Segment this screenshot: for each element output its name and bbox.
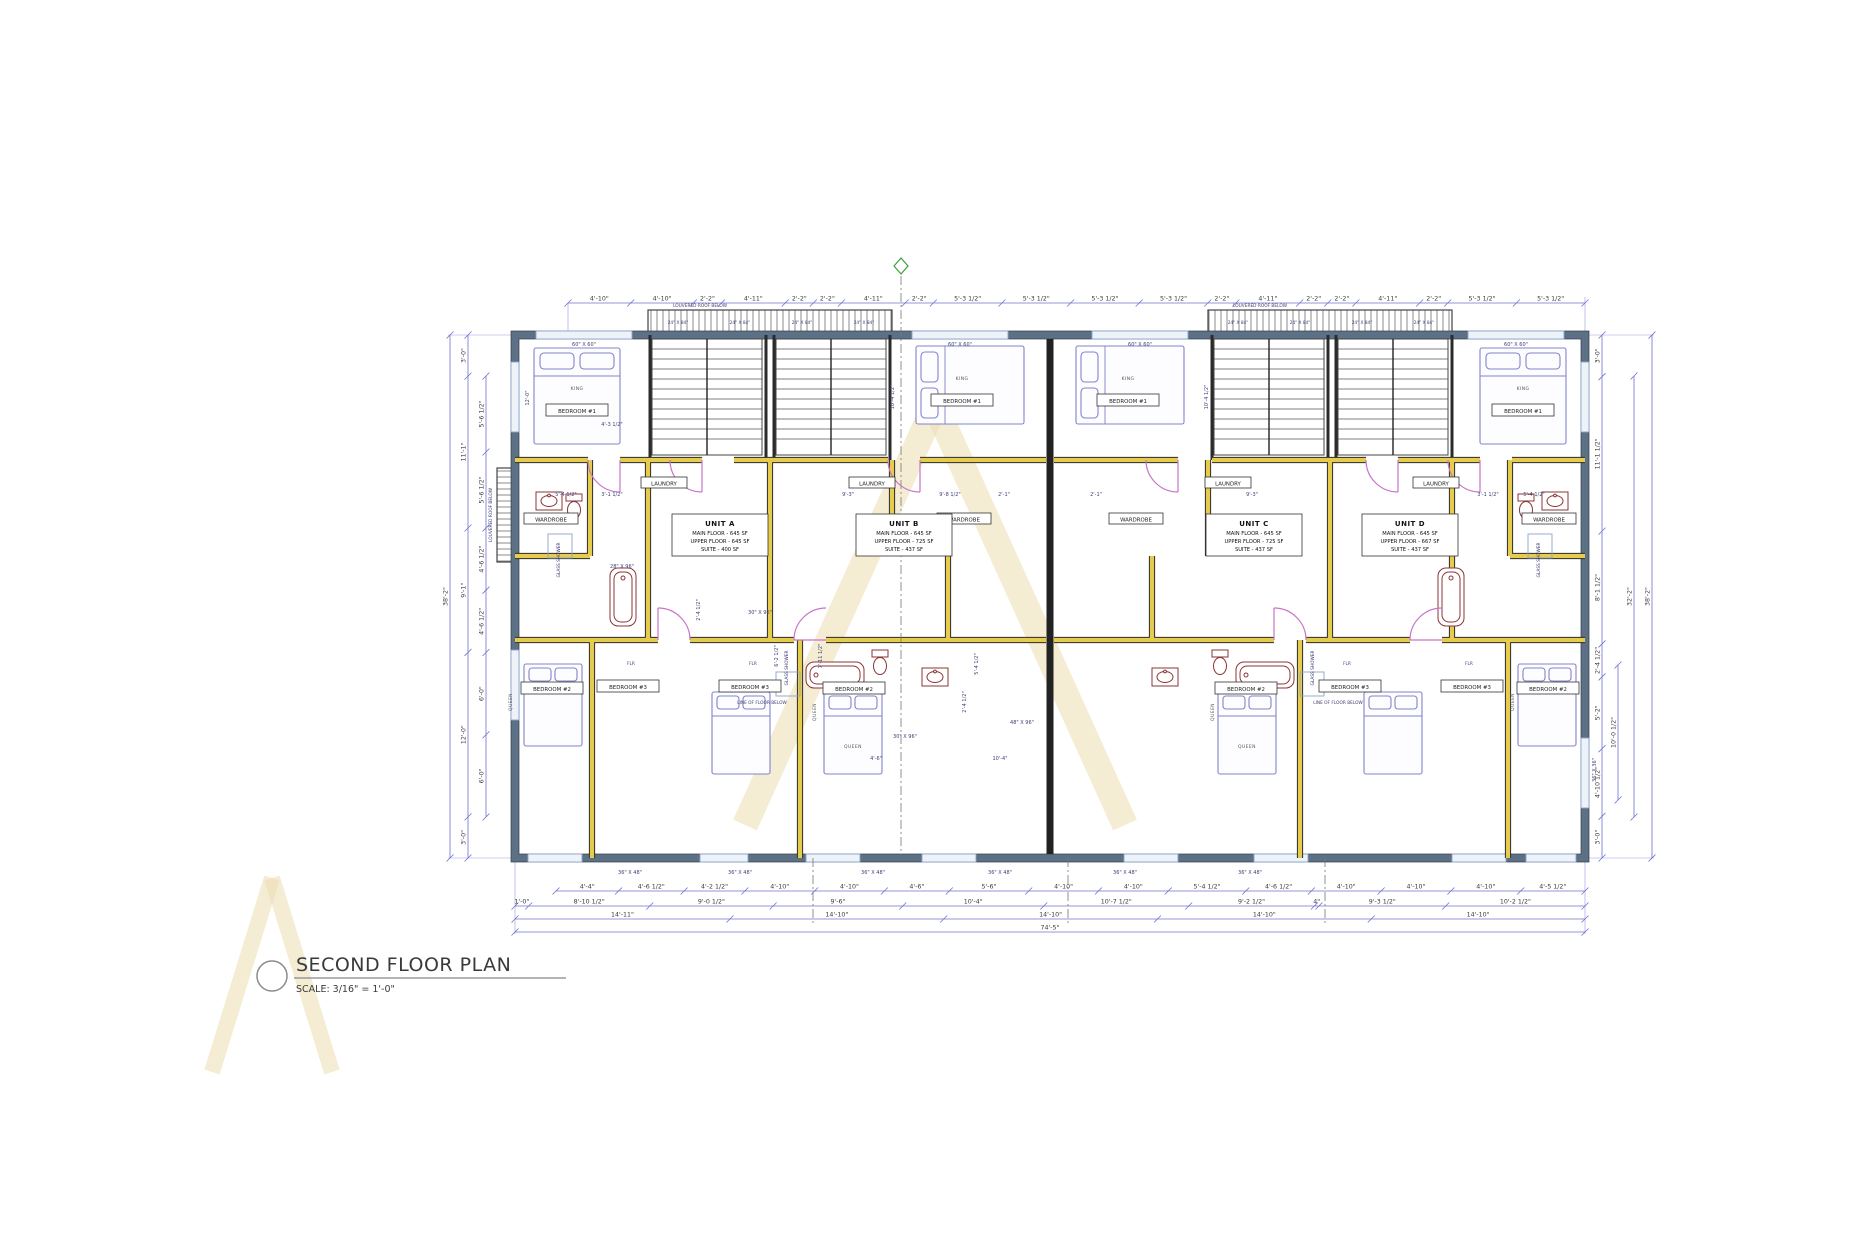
dim-string-right-10: 10'-0 1/2" xyxy=(1611,662,1622,804)
svg-text:MAIN FLOOR - 645 SF: MAIN FLOOR - 645 SF xyxy=(692,531,748,537)
svg-text:4'-6": 4'-6" xyxy=(870,756,882,762)
svg-text:5'-3 1/2": 5'-3 1/2" xyxy=(1091,296,1118,303)
svg-text:BEDROOM #3: BEDROOM #3 xyxy=(1453,685,1491,691)
svg-text:WARDROBE: WARDROBE xyxy=(1533,518,1565,524)
svg-text:9'-3": 9'-3" xyxy=(842,492,854,498)
svg-text:UPPER FLOOR - 667 SF: UPPER FLOOR - 667 SF xyxy=(1380,539,1439,545)
svg-text:SUITE - 437 SF: SUITE - 437 SF xyxy=(1235,547,1273,553)
room-label-laundry: LAUNDRY xyxy=(1205,477,1251,488)
page-title: SECOND FLOOR PLAN xyxy=(296,954,511,976)
svg-text:5'-3 1/2": 5'-3 1/2" xyxy=(1160,296,1187,303)
room-label-laundry: LAUNDRY xyxy=(641,477,687,488)
svg-text:2'-4 1/2": 2'-4 1/2" xyxy=(696,599,702,620)
svg-text:14'-10": 14'-10" xyxy=(825,912,848,919)
svg-text:36" X 48": 36" X 48" xyxy=(728,870,752,876)
svg-text:BEDROOM #2: BEDROOM #2 xyxy=(835,687,873,693)
svg-text:4'-10": 4'-10" xyxy=(653,296,672,303)
svg-text:QUEEN: QUEEN xyxy=(508,693,514,711)
svg-text:4": 4" xyxy=(1313,899,1320,906)
floor-plan-drawing: LOUVERED ROOF BELOW 24" X 84" 24" X 84" … xyxy=(0,0,1875,1250)
svg-text:9'-6": 9'-6" xyxy=(830,899,845,906)
svg-text:LINE OF FLOOR BELOW: LINE OF FLOOR BELOW xyxy=(737,700,787,706)
svg-text:FLR: FLR xyxy=(627,661,635,667)
svg-text:LAUNDRY: LAUNDRY xyxy=(1423,482,1449,488)
svg-text:10'-7 1/2": 10'-7 1/2" xyxy=(1101,899,1132,906)
svg-text:BEDROOM #3: BEDROOM #3 xyxy=(609,685,647,691)
svg-text:4'-10": 4'-10" xyxy=(840,884,859,891)
room-label-bedroom2: BEDROOM #2 xyxy=(823,682,885,694)
svg-text:4'-11": 4'-11" xyxy=(744,296,763,303)
svg-text:3'-1 1/2": 3'-1 1/2" xyxy=(1477,492,1498,498)
svg-text:UPPER FLOOR - 725 SF: UPPER FLOOR - 725 SF xyxy=(1224,539,1283,545)
svg-text:5'-6": 5'-6" xyxy=(982,884,997,891)
svg-text:4'-10": 4'-10" xyxy=(770,884,789,891)
svg-text:24" X 84": 24" X 84" xyxy=(1414,320,1435,326)
svg-text:2'-4 1/2": 2'-4 1/2" xyxy=(962,691,968,712)
svg-text:3'-0": 3'-0" xyxy=(461,348,468,363)
room-label-bedroom1: BEDROOM #1 xyxy=(546,404,608,416)
room-label-bedroom2: BEDROOM #2 xyxy=(521,682,583,694)
svg-text:28" X 96": 28" X 96" xyxy=(610,564,634,570)
svg-text:UNIT A: UNIT A xyxy=(705,520,735,528)
dim-string-right-mid: 32'-2" xyxy=(1627,373,1638,821)
svg-text:LINE OF FLOOR BELOW: LINE OF FLOOR BELOW xyxy=(1313,700,1363,706)
svg-text:10'-4": 10'-4" xyxy=(992,756,1007,762)
svg-text:9'-3 1/2": 9'-3 1/2" xyxy=(1369,899,1396,906)
svg-text:4'-10": 4'-10" xyxy=(590,296,609,303)
room-label-bedroom2: BEDROOM #2 xyxy=(1215,682,1277,694)
svg-text:4'-10": 4'-10" xyxy=(1337,884,1356,891)
svg-text:3'-0": 3'-0" xyxy=(1595,348,1602,363)
svg-text:2'-2": 2'-2" xyxy=(792,296,807,303)
svg-text:5'-6 1/2": 5'-6 1/2" xyxy=(479,476,486,503)
svg-text:5'-4 1/2": 5'-4 1/2" xyxy=(1523,492,1544,498)
svg-text:5'-3 1/2": 5'-3 1/2" xyxy=(1469,296,1496,303)
svg-text:24" X 84": 24" X 84" xyxy=(854,320,875,326)
room-label-bedroom3: BEDROOM #3 xyxy=(1319,680,1381,692)
dim-string-bottom-2: 1'-0"8'-10 1/2"9'-0 1/2"9'-6"10'-4"10'-7… xyxy=(512,899,1589,910)
svg-text:4'-6 1/2": 4'-6 1/2" xyxy=(638,884,665,891)
svg-text:10'-4 1/2": 10'-4 1/2" xyxy=(1204,385,1210,410)
svg-text:60" X 60": 60" X 60" xyxy=(948,342,972,348)
dim-string-bottom-1: 4'-4"4'-6 1/2"4'-2 1/2"4'-10"4'-10"4'-6"… xyxy=(553,884,1589,895)
svg-text:QUEEN: QUEEN xyxy=(844,744,862,750)
svg-text:UNIT B: UNIT B xyxy=(889,520,919,528)
title-bubble-icon xyxy=(257,961,287,991)
svg-text:32'-2": 32'-2" xyxy=(1627,587,1634,606)
svg-text:10'-2 1/2": 10'-2 1/2" xyxy=(1500,899,1531,906)
svg-text:2'-2": 2'-2" xyxy=(1214,296,1229,303)
svg-text:8'-1 1/2": 8'-1 1/2" xyxy=(1595,574,1602,601)
room-label-bedroom3: BEDROOM #3 xyxy=(719,680,781,692)
svg-text:10'-4": 10'-4" xyxy=(964,899,983,906)
svg-text:3'-0": 3'-0" xyxy=(1595,830,1602,845)
svg-text:BEDROOM #1: BEDROOM #1 xyxy=(943,399,981,405)
dim-string-left-outer: 38'-2" xyxy=(443,332,454,862)
keynote-diamond-icon xyxy=(894,258,908,274)
svg-text:LAUNDRY: LAUNDRY xyxy=(651,482,677,488)
svg-text:14'-10": 14'-10" xyxy=(1039,912,1062,919)
svg-text:4'-2 1/2": 4'-2 1/2" xyxy=(701,884,728,891)
svg-text:4'-6 1/2": 4'-6 1/2" xyxy=(1265,884,1292,891)
svg-text:10'-4 1/2": 10'-4 1/2" xyxy=(890,385,896,410)
svg-text:2'-2": 2'-2" xyxy=(820,296,835,303)
svg-text:GLASS SHOWER: GLASS SHOWER xyxy=(556,543,562,578)
room-label-laundry: LAUNDRY xyxy=(1413,477,1459,488)
svg-text:36" X 48": 36" X 48" xyxy=(618,870,642,876)
svg-text:UPPER FLOOR - 725 SF: UPPER FLOOR - 725 SF xyxy=(874,539,933,545)
svg-text:4'-11": 4'-11" xyxy=(1258,296,1277,303)
svg-text:3'-0": 3'-0" xyxy=(461,830,468,845)
dim-string-bottom-3: 14'-11"14'-10"14'-10"14'-10"14'-10" xyxy=(512,912,1589,923)
svg-text:30" X 96": 30" X 96" xyxy=(748,610,772,616)
room-label-wardrobe: WARDROBE xyxy=(524,513,578,524)
svg-text:2'-2": 2'-2" xyxy=(700,296,715,303)
svg-text:QUEEN: QUEEN xyxy=(1510,693,1516,711)
svg-text:BEDROOM #2: BEDROOM #2 xyxy=(1529,687,1567,693)
svg-text:36" X 48": 36" X 48" xyxy=(988,870,1012,876)
svg-text:UNIT C: UNIT C xyxy=(1239,520,1269,528)
svg-text:MAIN FLOOR - 645 SF: MAIN FLOOR - 645 SF xyxy=(1382,531,1438,537)
svg-text:14'-10": 14'-10" xyxy=(1467,912,1490,919)
unit-d-info: UNIT D MAIN FLOOR - 645 SF UPPER FLOOR -… xyxy=(1362,514,1458,556)
svg-text:12'-0": 12'-0" xyxy=(525,390,531,405)
svg-text:24" X 84": 24" X 84" xyxy=(668,320,689,326)
svg-text:9'-1": 9'-1" xyxy=(461,583,468,598)
svg-text:9'-3": 9'-3" xyxy=(1246,492,1258,498)
svg-text:48" X 96": 48" X 96" xyxy=(1010,720,1034,726)
unit-b-info: UNIT B MAIN FLOOR - 645 SF UPPER FLOOR -… xyxy=(856,514,952,556)
svg-text:BEDROOM #2: BEDROOM #2 xyxy=(1227,687,1265,693)
svg-text:2'-2": 2'-2" xyxy=(1334,296,1349,303)
louvered-roof-side-strip: LOUVERED ROOF BELOW xyxy=(488,468,513,562)
svg-text:6'-0": 6'-0" xyxy=(479,768,486,783)
svg-text:6'-0": 6'-0" xyxy=(479,686,486,701)
svg-text:LOUVERED ROOF BELOW: LOUVERED ROOF BELOW xyxy=(488,487,494,542)
room-label-wardrobe: WARDROBE xyxy=(1109,513,1163,524)
svg-text:11'-1 1/2": 11'-1 1/2" xyxy=(1595,438,1602,469)
svg-text:QUEEN: QUEEN xyxy=(812,703,818,721)
svg-text:8'-10 1/2": 8'-10 1/2" xyxy=(574,899,605,906)
svg-text:WARDROBE: WARDROBE xyxy=(948,518,980,524)
svg-text:5'-4 1/2": 5'-4 1/2" xyxy=(1193,884,1220,891)
svg-text:BEDROOM #1: BEDROOM #1 xyxy=(558,409,596,415)
svg-text:9'-8 1/2": 9'-8 1/2" xyxy=(939,492,960,498)
svg-text:60" X 60": 60" X 60" xyxy=(572,342,596,348)
room-label-bedroom3: BEDROOM #3 xyxy=(597,680,659,692)
svg-text:4'-6 1/2": 4'-6 1/2" xyxy=(479,608,486,635)
svg-text:KING: KING xyxy=(1517,386,1530,392)
svg-text:5'-4 1/2": 5'-4 1/2" xyxy=(555,492,576,498)
svg-text:2'-1": 2'-1" xyxy=(1090,492,1102,498)
svg-text:LOUVERED ROOF BELOW: LOUVERED ROOF BELOW xyxy=(673,303,728,309)
svg-text:FLR: FLR xyxy=(1465,661,1473,667)
svg-text:QUEEN: QUEEN xyxy=(1210,703,1216,721)
svg-text:LOUVERED ROOF BELOW: LOUVERED ROOF BELOW xyxy=(1233,303,1288,309)
room-label-bedroom1: BEDROOM #1 xyxy=(931,394,993,406)
svg-text:BEDROOM #3: BEDROOM #3 xyxy=(1331,685,1369,691)
svg-text:KING: KING xyxy=(956,376,969,382)
svg-text:4'-10": 4'-10" xyxy=(1124,884,1143,891)
svg-text:5'-6 1/2": 5'-6 1/2" xyxy=(479,400,486,427)
svg-text:36" X 48": 36" X 48" xyxy=(861,870,885,876)
svg-text:SUITE - 437 SF: SUITE - 437 SF xyxy=(885,547,923,553)
svg-text:LAUNDRY: LAUNDRY xyxy=(859,482,885,488)
svg-text:24" X 84": 24" X 84" xyxy=(792,320,813,326)
svg-text:36" X 48": 36" X 48" xyxy=(1113,870,1137,876)
svg-text:QUEEN: QUEEN xyxy=(1238,744,1256,750)
svg-text:11'-1": 11'-1" xyxy=(461,442,468,461)
svg-text:BEDROOM #2: BEDROOM #2 xyxy=(533,687,571,693)
room-label-bedroom1: BEDROOM #1 xyxy=(1097,394,1159,406)
room-label-bedroom3: BEDROOM #3 xyxy=(1441,680,1503,692)
svg-text:2'-2": 2'-2" xyxy=(1306,296,1321,303)
svg-text:9'-2 1/2": 9'-2 1/2" xyxy=(1238,899,1265,906)
svg-text:4'-6 1/2": 4'-6 1/2" xyxy=(479,545,486,572)
unit-c-info: UNIT C MAIN FLOOR - 645 SF UPPER FLOOR -… xyxy=(1206,514,1302,556)
drawing-scale: SCALE: 3/16" = 1'-0" xyxy=(296,984,395,995)
svg-text:KING: KING xyxy=(1122,376,1135,382)
svg-text:2'-2": 2'-2" xyxy=(1426,296,1441,303)
svg-text:5'-3 1/2": 5'-3 1/2" xyxy=(954,296,981,303)
svg-text:KING: KING xyxy=(571,386,584,392)
dim-string-right-outer: 38'-2" xyxy=(1645,332,1656,862)
svg-text:4'-10": 4'-10" xyxy=(1054,884,1073,891)
svg-text:GLASS SHOWER: GLASS SHOWER xyxy=(1536,543,1542,578)
svg-text:4'-5 1/2": 4'-5 1/2" xyxy=(1539,884,1566,891)
svg-text:FLR: FLR xyxy=(1343,661,1351,667)
svg-text:24" X 84": 24" X 84" xyxy=(1228,320,1249,326)
room-label-wardrobe: WARDROBE xyxy=(1522,513,1576,524)
svg-text:60" X 60": 60" X 60" xyxy=(1128,342,1152,348)
dim-string-right-inner: 3'-0"11'-1 1/2"8'-1 1/2"2'-4 1/2"5'-2"4'… xyxy=(1595,332,1606,862)
louvered-roof-left-strip: LOUVERED ROOF BELOW 24" X 84" 24" X 84" … xyxy=(648,303,892,335)
svg-text:4'-10": 4'-10" xyxy=(1476,884,1495,891)
svg-text:1'-0": 1'-0" xyxy=(514,899,529,906)
svg-text:3'-1 1/2": 3'-1 1/2" xyxy=(601,492,622,498)
louvered-roof-right-strip: LOUVERED ROOF BELOW 24" X 84" 24" X 84" … xyxy=(1208,303,1452,335)
svg-text:4'-3 1/2": 4'-3 1/2" xyxy=(601,422,622,428)
svg-text:GLASS SHOWER: GLASS SHOWER xyxy=(1310,651,1316,686)
svg-text:WARDROBE: WARDROBE xyxy=(535,518,567,524)
svg-text:4'-11": 4'-11" xyxy=(864,296,883,303)
svg-text:BEDROOM #3: BEDROOM #3 xyxy=(731,685,769,691)
svg-text:24" X 84": 24" X 84" xyxy=(1290,320,1311,326)
unit-a-info: UNIT A MAIN FLOOR - 645 SF UPPER FLOOR -… xyxy=(672,514,768,556)
room-label-bedroom2: BEDROOM #2 xyxy=(1517,682,1579,694)
svg-text:MAIN FLOOR - 645 SF: MAIN FLOOR - 645 SF xyxy=(876,531,932,537)
dim-string-left-mid: 3'-0"11'-1"9'-1"12'-0"3'-0" xyxy=(461,332,472,862)
room-label-laundry: LAUNDRY xyxy=(849,477,895,488)
svg-text:24" X 84": 24" X 84" xyxy=(1352,320,1373,326)
dim-string-left-inner: 5'-6 1/2"5'-6 1/2"4'-6 1/2"4'-6 1/2"6'-0… xyxy=(479,373,490,821)
svg-text:4'-10 1/2": 4'-10 1/2" xyxy=(1595,767,1602,798)
svg-text:WARDROBE: WARDROBE xyxy=(1120,518,1152,524)
svg-text:30" X 96": 30" X 96" xyxy=(893,734,917,740)
svg-text:2'-4 1/2": 2'-4 1/2" xyxy=(1595,647,1602,674)
svg-text:LAUNDRY: LAUNDRY xyxy=(1215,482,1241,488)
svg-text:36" X 48": 36" X 48" xyxy=(1238,870,1262,876)
svg-text:7'-11 1/2": 7'-11 1/2" xyxy=(818,644,824,669)
svg-text:UPPER FLOOR - 645 SF: UPPER FLOOR - 645 SF xyxy=(690,539,749,545)
svg-text:4'-4": 4'-4" xyxy=(580,884,595,891)
svg-text:60" X 60": 60" X 60" xyxy=(1504,342,1528,348)
svg-text:9'-0 1/2": 9'-0 1/2" xyxy=(698,899,725,906)
svg-text:2'-1": 2'-1" xyxy=(998,492,1010,498)
svg-text:4'-11": 4'-11" xyxy=(1378,296,1397,303)
svg-text:FLR: FLR xyxy=(749,661,757,667)
svg-text:GLASS SHOWER: GLASS SHOWER xyxy=(784,651,790,686)
svg-text:BEDROOM #1: BEDROOM #1 xyxy=(1109,399,1147,405)
svg-text:5'-2": 5'-2" xyxy=(1595,705,1602,720)
svg-text:74'-5": 74'-5" xyxy=(1041,925,1060,932)
dim-string-bottom-overall: 74'-5" xyxy=(512,925,1589,936)
svg-text:5'-3 1/2": 5'-3 1/2" xyxy=(1023,296,1050,303)
svg-text:5'-4 1/2": 5'-4 1/2" xyxy=(974,653,980,674)
title-block: SECOND FLOOR PLAN SCALE: 3/16" = 1'-0" xyxy=(257,954,566,995)
svg-text:5'-3 1/2": 5'-3 1/2" xyxy=(1537,296,1564,303)
svg-text:4'-6": 4'-6" xyxy=(909,884,924,891)
room-label-bedroom1: BEDROOM #1 xyxy=(1492,404,1554,416)
svg-text:2'-2": 2'-2" xyxy=(912,296,927,303)
svg-text:14'-11": 14'-11" xyxy=(611,912,634,919)
svg-text:38'-2": 38'-2" xyxy=(443,587,450,606)
svg-text:SUITE - 437 SF: SUITE - 437 SF xyxy=(1391,547,1429,553)
svg-text:UNIT D: UNIT D xyxy=(1395,520,1425,528)
svg-text:4'-10": 4'-10" xyxy=(1407,884,1426,891)
svg-text:24" X 84": 24" X 84" xyxy=(730,320,751,326)
svg-text:14'-10": 14'-10" xyxy=(1253,912,1276,919)
svg-text:38'-2": 38'-2" xyxy=(1645,587,1652,606)
svg-text:BEDROOM #1: BEDROOM #1 xyxy=(1504,409,1542,415)
page: LOUVERED ROOF BELOW 24" X 84" 24" X 84" … xyxy=(0,0,1875,1250)
svg-text:12'-0": 12'-0" xyxy=(461,725,468,744)
svg-text:10'-0 1/2": 10'-0 1/2" xyxy=(1611,717,1618,748)
svg-text:MAIN FLOOR - 645 SF: MAIN FLOOR - 645 SF xyxy=(1226,531,1282,537)
svg-text:6'-2 1/2": 6'-2 1/2" xyxy=(774,645,780,666)
svg-text:SUITE - 400 SF: SUITE - 400 SF xyxy=(701,547,739,553)
